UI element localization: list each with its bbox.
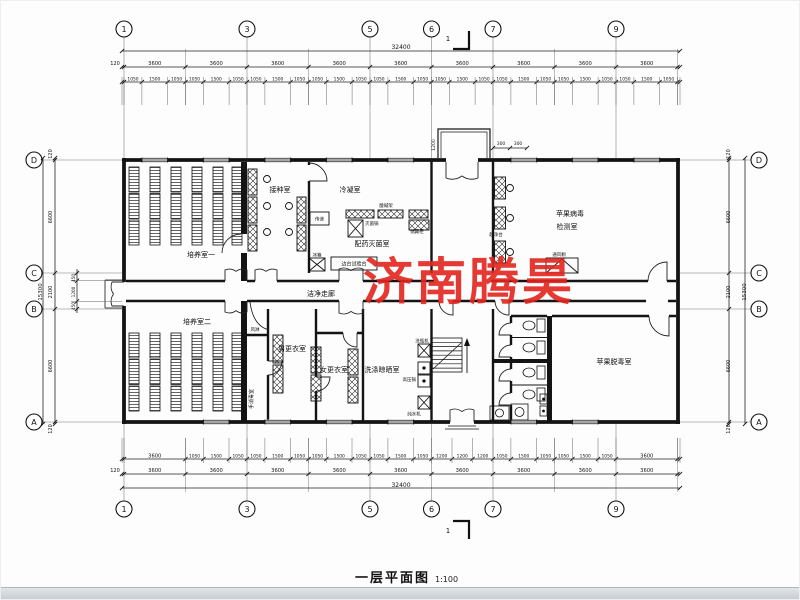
culture-rack	[192, 333, 202, 358]
drawing-scale: 1:100	[435, 575, 458, 584]
dim-porch-300a: 300	[497, 141, 506, 147]
dim-label: 1050	[127, 77, 138, 83]
culture-rack	[129, 333, 139, 358]
culture-rack	[129, 386, 139, 411]
culture-rack	[171, 333, 181, 358]
dim-label: 3600	[394, 468, 407, 474]
culture-rack	[150, 167, 160, 192]
door-women-vestibule	[339, 301, 363, 314]
dim-porch-300b: 300	[514, 141, 523, 147]
culture-rack	[171, 167, 181, 192]
dim-label: 3600	[640, 61, 653, 67]
culture-rack	[150, 194, 160, 219]
dim-label: 3	[244, 505, 249, 514]
label-wash: 洗涤晾晒室	[365, 365, 400, 374]
culture-rack	[232, 386, 242, 411]
dim-left-450-bottom: 450	[71, 302, 76, 310]
culture-rack	[232, 333, 242, 358]
label-sterilizer: 灭菌锅	[365, 220, 379, 227]
dim-left-6600-bottom: 6600	[48, 360, 54, 373]
dim-label: 9	[613, 505, 618, 514]
dim-label: 7	[490, 25, 495, 34]
dim-porch-1200: 1200	[431, 139, 437, 151]
lab-benches	[346, 177, 506, 263]
dim-label: 1500	[211, 454, 222, 460]
watermark: 济南腾昊	[363, 257, 575, 307]
dim-label: 7	[490, 505, 495, 514]
label-clean-bench: 超净台	[489, 231, 503, 238]
dim-label: 1050	[435, 77, 446, 83]
label-test-line2: 检测室	[557, 222, 578, 231]
label-men-change: 男更衣室	[278, 344, 306, 353]
section-label-top: 1	[446, 35, 450, 43]
dim-label: 1050	[250, 77, 261, 83]
dim-label: 3600	[148, 454, 161, 460]
dim-label: 3600	[579, 468, 592, 474]
dim-label: 1050	[356, 454, 367, 460]
dim-label: 1050	[250, 454, 261, 460]
dim-label: 3	[244, 25, 249, 34]
dim-left-total: 15300	[38, 283, 44, 301]
culture-rack	[192, 194, 202, 219]
door-inoculation	[255, 269, 277, 281]
dim-label: 1050	[356, 77, 367, 83]
dim-right-edge-top: 120	[726, 149, 732, 159]
culture-rack	[192, 386, 202, 411]
dim-label: 1050	[233, 454, 244, 460]
air-shower-arc	[250, 302, 269, 330]
dim-label: 1050	[663, 77, 674, 83]
dim-label: 3600	[456, 61, 469, 67]
dim-label: 1500	[334, 454, 345, 460]
door-vestibule	[343, 333, 357, 347]
dim-label: 9	[613, 25, 618, 34]
culture-rack	[213, 167, 223, 192]
culture-rack	[129, 220, 139, 245]
culture-rack	[171, 386, 181, 411]
dim-label: 1050	[540, 77, 551, 83]
dim-left-2100: 2100	[48, 286, 54, 299]
culture-rack	[171, 360, 181, 385]
dim-label: 1050	[496, 77, 507, 83]
dim-label: 3600	[210, 61, 223, 67]
dim-top-edge: 120	[110, 61, 120, 67]
culture-rack	[129, 167, 139, 192]
culture-rack	[192, 360, 202, 385]
dim-label: 6	[429, 25, 434, 34]
dim-label: 3600	[640, 468, 653, 474]
dim-label: 1050	[294, 454, 305, 460]
dim-label: 1500	[395, 77, 406, 83]
label-water-purifier: 纯水机	[407, 411, 421, 418]
culture-rack	[150, 333, 160, 358]
dim-label: 1050	[417, 77, 428, 83]
dim-label: 1500	[395, 454, 406, 460]
dim-left-edge-bottom: 120	[48, 424, 54, 434]
label-prep: 配药灭菌室	[355, 239, 390, 248]
culture-rack	[171, 194, 181, 219]
autoclave-boxes	[418, 362, 430, 387]
label-storage: 储藏柜	[410, 228, 424, 235]
label-acid-rack: 酸碱架	[379, 202, 393, 209]
label-culture2: 培养室二	[183, 317, 211, 326]
culture-rack	[213, 194, 223, 219]
section-mark-bottom	[453, 521, 469, 539]
label-air-shower: 风淋	[251, 326, 260, 333]
label-pass-window: 传递	[315, 216, 324, 223]
door-condensation	[309, 163, 327, 181]
culture-rack	[150, 220, 160, 245]
dim-label: D	[31, 156, 37, 165]
dim-label: 3600	[148, 468, 161, 474]
culture-rack	[192, 220, 202, 245]
dim-label: 1500	[334, 77, 345, 83]
culture-rack	[213, 386, 223, 411]
drawing-title: 一层平面图	[355, 571, 430, 586]
door-main-entrance	[446, 162, 478, 179]
dim-label: 1050	[312, 454, 323, 460]
dim-left-6600-top: 6600	[48, 211, 54, 224]
entrance-canopy	[438, 129, 490, 158]
dim-label: 1	[121, 25, 126, 34]
dim-right-6600-bottom: 6600	[726, 360, 732, 373]
dim-label: C	[31, 269, 37, 278]
dim-label: 3600	[271, 61, 284, 67]
culture-rack	[150, 386, 160, 411]
culture-rack	[192, 167, 202, 192]
dim-label: 1050	[417, 454, 428, 460]
dim-label: 1050	[189, 77, 200, 83]
bottom-bar	[1, 587, 800, 599]
dim-label: 1500	[272, 77, 283, 83]
culture-rack	[129, 194, 139, 219]
label-inoculation: 接种室	[270, 185, 291, 194]
dim-label: 1050	[312, 77, 323, 83]
label-hand-sterilize: 手消毒室	[248, 389, 255, 409]
culture-rack	[232, 220, 242, 245]
section-mark-top	[453, 31, 469, 49]
dim-left-450-top: 450	[71, 274, 76, 282]
dim-left-1200: 1200	[71, 286, 76, 297]
dim-label: 1050	[373, 77, 384, 83]
culture-rack	[232, 360, 242, 385]
dim-right-6600-top: 6600	[726, 211, 732, 224]
dim-label: 1500	[211, 77, 222, 83]
fridge-box	[309, 258, 325, 271]
culture-rack	[213, 333, 223, 358]
dim-label: 1500	[518, 454, 529, 460]
door-detox-room	[649, 316, 669, 336]
label-test-line1: 苹果病毒	[556, 209, 584, 218]
dim-label: 3600	[148, 61, 161, 67]
dim-label: 1050	[558, 454, 569, 460]
dim-label: 1500	[457, 77, 468, 83]
label-culture1: 培养室一	[187, 250, 215, 259]
dim-label: 1050	[602, 77, 613, 83]
dim-label: 1200	[477, 454, 488, 460]
dim-label: 1050	[233, 77, 244, 83]
culture-rack	[129, 360, 139, 385]
dim-label: 1050	[189, 454, 200, 460]
dim-label: 5	[367, 505, 372, 514]
dim-label: 1500	[272, 454, 283, 460]
label-bottle-washer: 洗瓶机	[415, 338, 429, 345]
door-corridor-west	[111, 282, 124, 306]
dim-label: 3600	[210, 468, 223, 474]
dim-right-edge-bottom: 120	[726, 424, 732, 434]
dim-label: 1050	[171, 77, 182, 83]
door-rear-entrance	[450, 409, 474, 422]
dim-label: 1050	[558, 77, 569, 83]
floor-plan-page: 113355667799DDCCBBAA36003600360036003600…	[0, 0, 800, 600]
dim-label: 3600	[517, 468, 530, 474]
dim-label: 3600	[517, 61, 530, 67]
dim-label: 1500	[641, 77, 652, 83]
dim-label: 3600	[271, 468, 284, 474]
culture-rack	[232, 167, 242, 192]
dim-label: 3600	[333, 468, 346, 474]
label-fridge: 冰箱	[313, 252, 322, 259]
culture-rack	[171, 220, 181, 245]
dim-label: B	[756, 305, 762, 314]
culture-rack	[150, 360, 160, 385]
dim-label: D	[756, 156, 762, 165]
label-detox: 苹果脱毒室	[597, 357, 632, 366]
dim-label: 1200	[457, 454, 468, 460]
dim-label: 1500	[518, 77, 529, 83]
dim-bottom-edge: 120	[110, 468, 120, 474]
sinks	[490, 394, 547, 420]
water-purifier-box	[418, 396, 430, 409]
dim-label: 1050	[602, 454, 613, 460]
dim-label: 1500	[580, 77, 591, 83]
dim-right-2100: 2100	[726, 286, 732, 299]
dim-label: 3600	[456, 468, 469, 474]
dim-label: B	[31, 305, 37, 314]
dim-label: A	[31, 418, 37, 427]
door-test-room	[648, 262, 667, 281]
bottle-washer-box	[418, 344, 430, 357]
dim-label: C	[756, 269, 762, 278]
dim-label: 3600	[394, 61, 407, 67]
dim-label: 3600	[579, 61, 592, 67]
dim-label: 1050	[540, 454, 551, 460]
sterilizer-box	[348, 220, 363, 237]
dim-label: 1050	[619, 77, 630, 83]
section-label-bottom: 1	[446, 527, 450, 535]
dim-label: 1050	[479, 77, 490, 83]
culture-rack	[232, 194, 242, 219]
dim-label: 1200	[436, 454, 447, 460]
label-autoclave: 高压锅	[403, 376, 417, 383]
label-corridor: 洁净走廊	[307, 289, 335, 298]
dim-top-total: 32400	[391, 44, 410, 51]
door-stalls	[499, 323, 511, 405]
culture-rack	[213, 360, 223, 385]
dim-label: 1	[121, 505, 126, 514]
dim-label: 3600	[333, 61, 346, 67]
dim-label: A	[756, 418, 762, 427]
dim-left-edge-top: 120	[48, 149, 54, 159]
dim-bottom-total: 32400	[391, 482, 410, 489]
dim-label: 5	[367, 25, 372, 34]
dim-label: 1050	[294, 77, 305, 83]
label-condensation: 冷凝室	[340, 185, 361, 194]
staircase	[432, 338, 470, 373]
dim-label: 6	[429, 505, 434, 514]
culture-rack	[213, 220, 223, 245]
dim-right-total: 15300	[742, 283, 748, 301]
dim-label: 1500	[149, 77, 160, 83]
dim-label: 3600	[640, 454, 653, 460]
dim-label: 1050	[496, 454, 507, 460]
dim-label: 1500	[580, 454, 591, 460]
label-women-change: 女更衣室	[320, 365, 348, 374]
dim-label: 1050	[373, 454, 384, 460]
